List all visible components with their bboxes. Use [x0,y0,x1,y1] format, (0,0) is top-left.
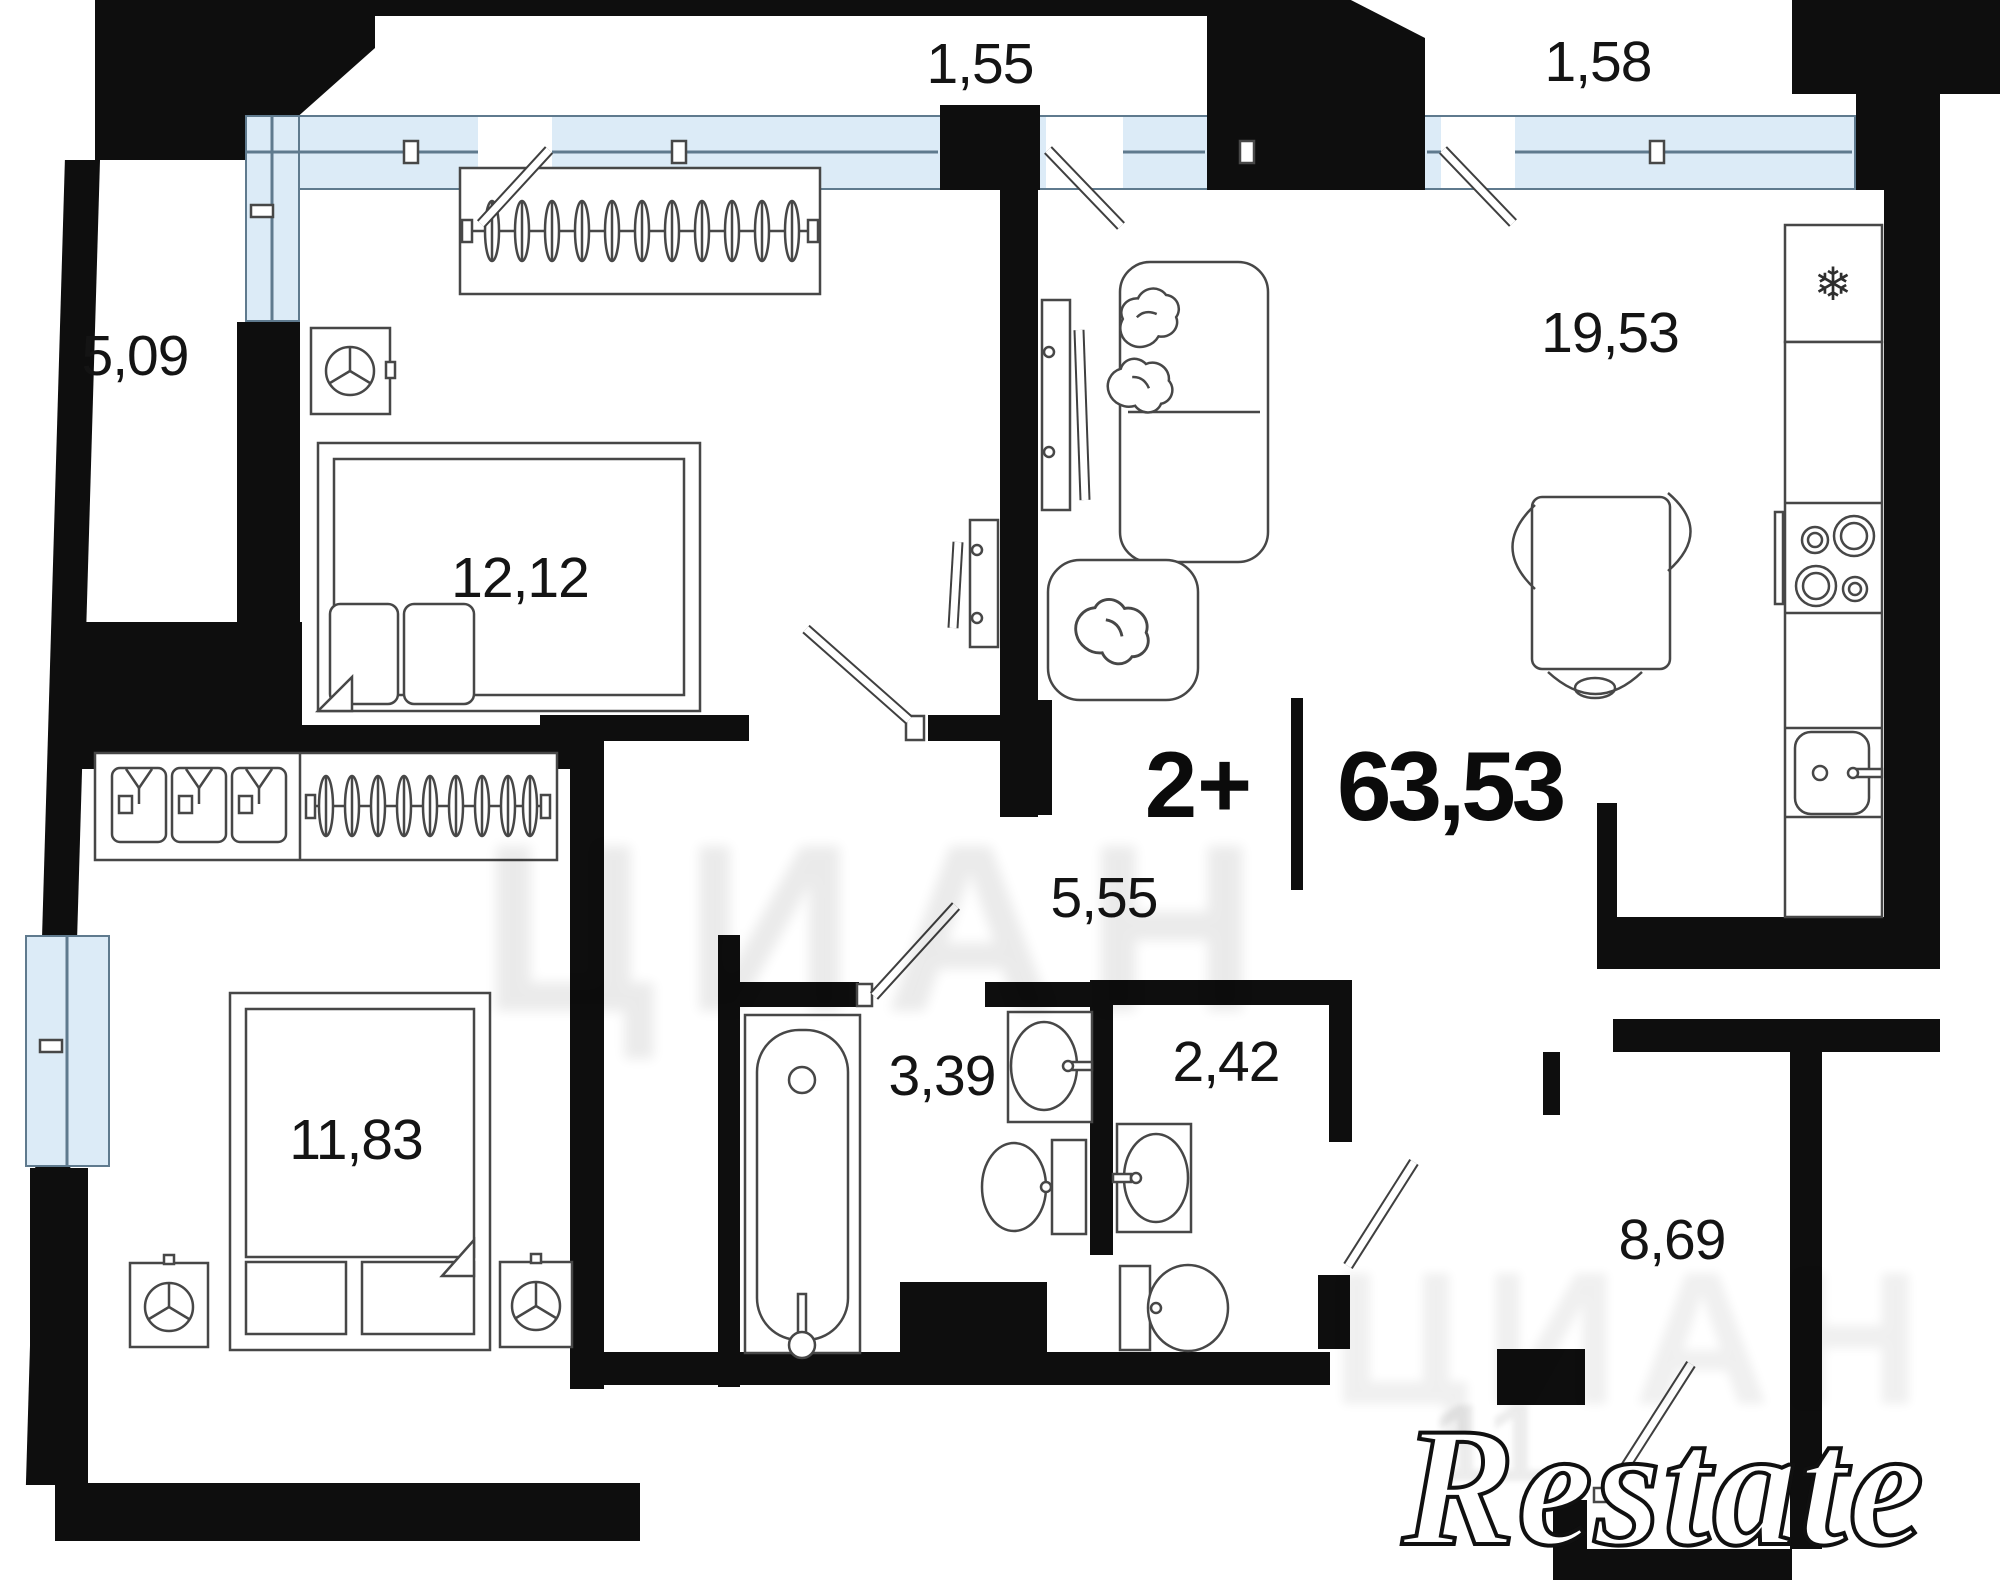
cabinet-unit-icon [311,328,395,414]
room-label-balcony-top-right: 1,58 [1545,29,1652,95]
watermark-brand: Restate [1402,1402,1926,1572]
tv-icon [1042,300,1085,510]
room-label-bathroom: 3,39 [889,1043,996,1109]
room-label-bedroom-top: 12,12 [451,545,589,611]
cabinet-unit-icon [500,1254,572,1347]
kitchen-sink-icon [1795,732,1882,814]
bathtub-icon [745,1015,860,1358]
kitchen-counter [1785,342,1882,917]
room-label-balcony-left: 5,09 [82,323,189,389]
dining-table-icon [1513,493,1691,698]
toilet-icon [982,1140,1086,1234]
wc-toilet-icon [1120,1265,1228,1351]
room-label-kitchen-living: 19,53 [1541,300,1679,366]
tv-icon [953,520,998,647]
bedroom-door-leaf [806,629,924,740]
cabinet-unit-icon [130,1255,208,1347]
room-label-balcony-top-left: 1,55 [927,31,1034,97]
sofa-icon [1101,262,1268,562]
room-label-entry-hall: 8,69 [1619,1207,1726,1273]
armchair-icon [1048,560,1198,700]
label-divider [1291,698,1303,890]
wc-sink-icon [1113,1124,1191,1232]
wc-door-leaf [1348,1162,1414,1266]
wardrobe-icon [95,753,557,860]
room-label-hallway: 5,55 [1051,865,1158,931]
bathroom-door-leaf [857,906,956,1006]
room-label-bedroom-bottom: 11,83 [289,1107,422,1173]
unit-total-area: 63,53 [1337,737,1562,835]
snowflake-icon: ❄ [1814,257,1853,311]
bathroom-sink-icon [1008,1012,1092,1122]
floor-plan: 5,09 1,55 1,58 19,53 12,12 11,83 5,55 3,… [0,0,2000,1580]
room-label-toilet: 2,42 [1173,1029,1280,1095]
unit-type-label: 2+ [1000,738,1252,832]
